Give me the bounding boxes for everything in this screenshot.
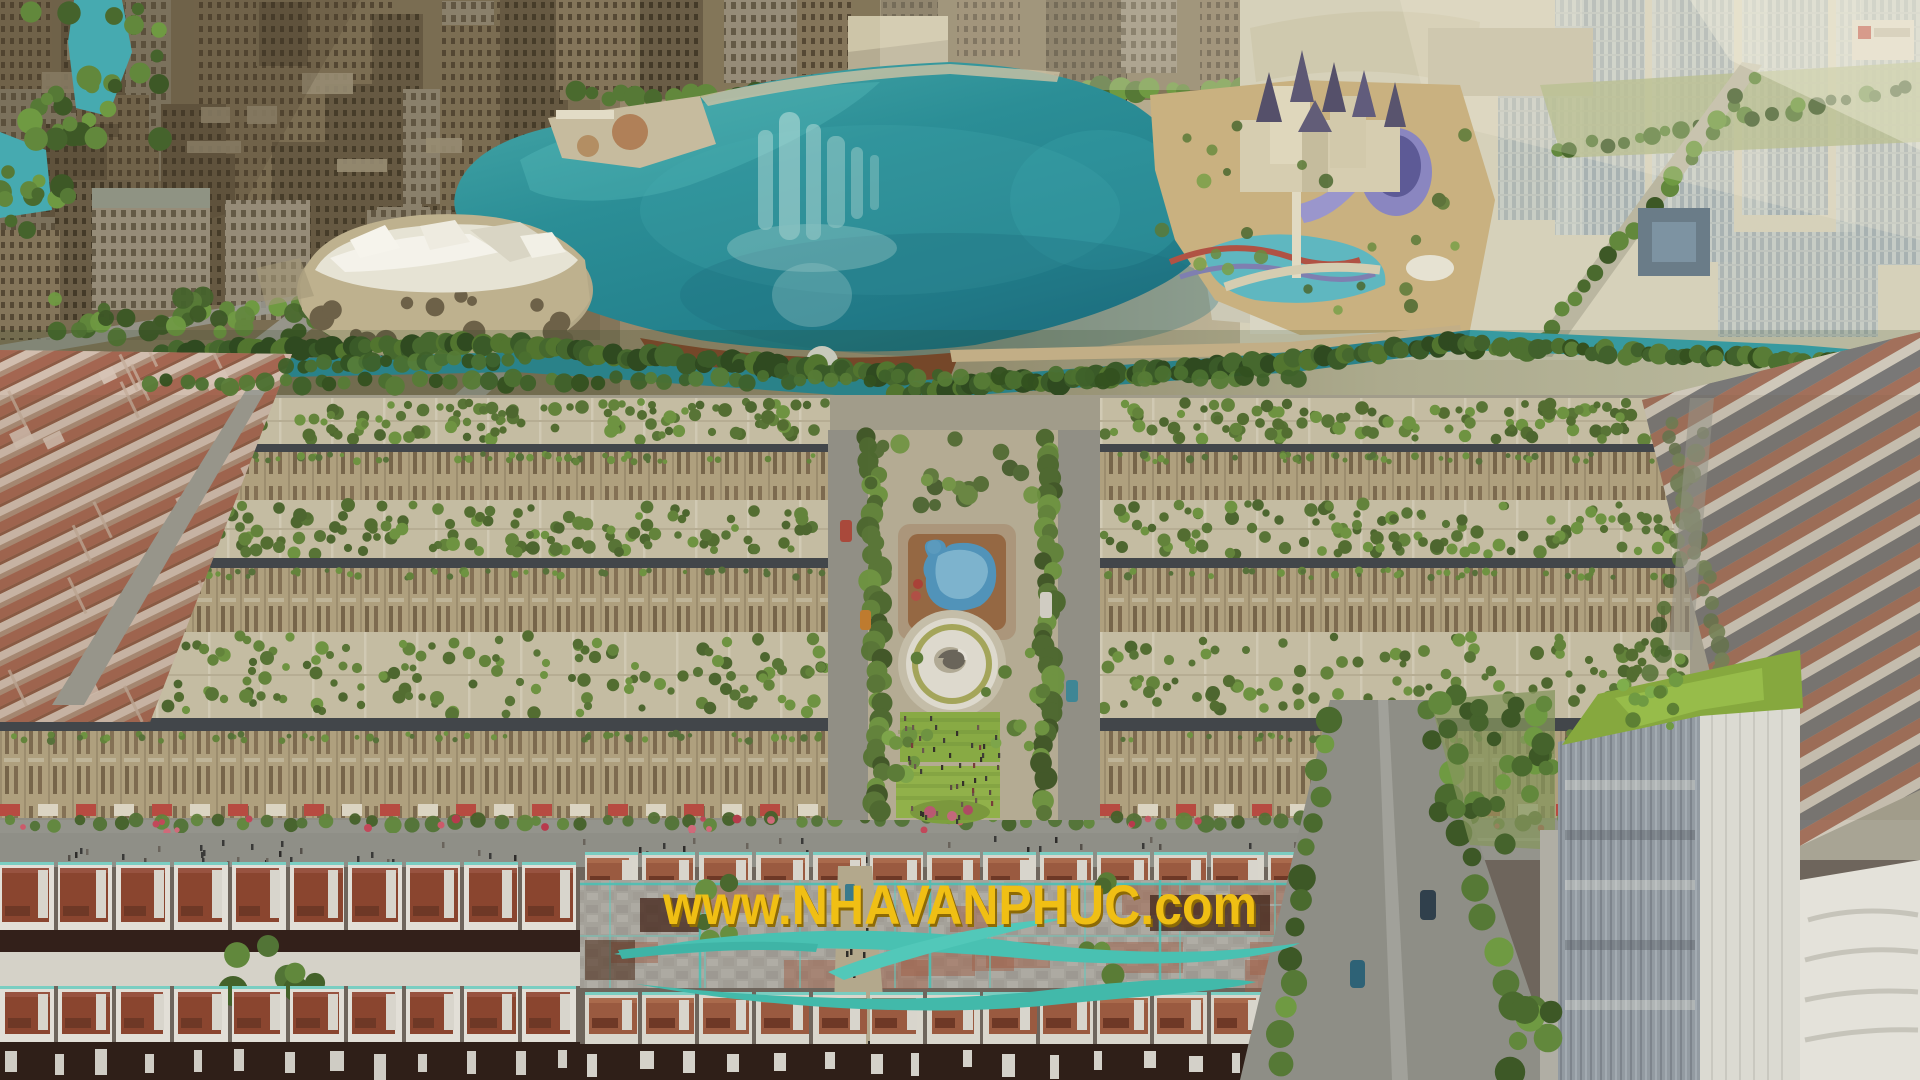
svg-text:www.NHAVANPHUC.com: www.NHAVANPHUC.com [662, 873, 1257, 936]
